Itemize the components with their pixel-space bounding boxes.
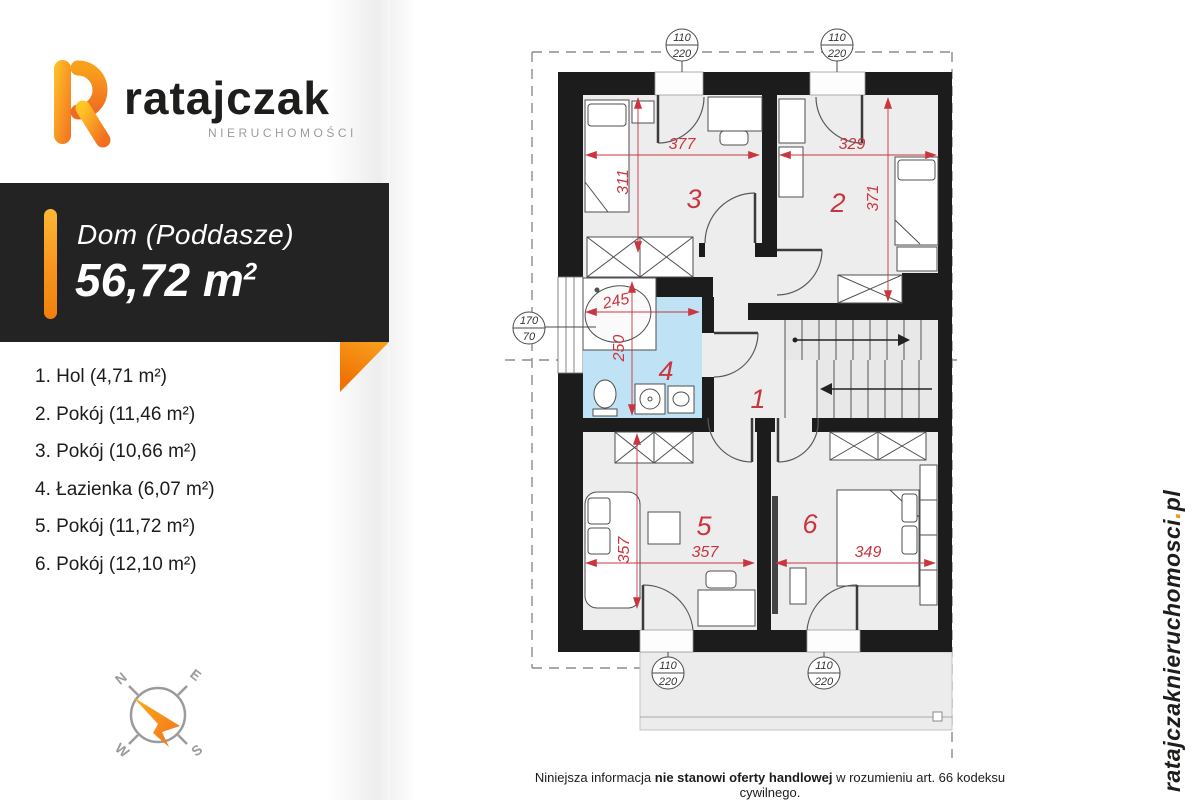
dim-room6-width: 349 <box>855 544 882 561</box>
area-card: Dom (Poddasze) 56,72 m2 <box>0 183 389 342</box>
dim-room2-depth: 371 <box>865 185 882 212</box>
brand-wordmark: ratajczak <box>124 72 330 124</box>
room-list-item-5: 5. Pokój (11,72 m²) <box>35 508 215 546</box>
terrace <box>640 652 952 730</box>
room-list-item-2: 2. Pokój (11,46 m²) <box>35 396 215 434</box>
window-label-height: 220 <box>658 676 678 688</box>
window-label-height: 220 <box>814 676 834 688</box>
dim-room5-depth: 357 <box>616 536 633 564</box>
compass-s: S <box>188 741 205 759</box>
floor-area: 56,72 m2 <box>75 253 257 307</box>
room-list-item-3: 3. Pokój (10,66 m²) <box>35 433 215 471</box>
website-name: ratajczaknieruchomosci <box>1159 519 1185 792</box>
room-list-item-6: 6. Pokój (12,10 m²) <box>35 546 215 584</box>
room-number-1: 1 <box>750 384 765 414</box>
side-window <box>558 277 583 373</box>
side-window-label-height: 70 <box>523 331 536 343</box>
disclaimer-start: Niniejsza informacja <box>535 770 655 785</box>
window-label-height: 220 <box>827 48 847 60</box>
window-label-height: 220 <box>672 48 692 60</box>
dim-room3-width: 377 <box>669 136 697 153</box>
floor-area-value: 56,72 m <box>75 254 244 306</box>
room-list-item-4: 4. Łazienka (6,07 m²) <box>35 471 215 509</box>
accent-bar <box>44 209 57 319</box>
room-list-item-1: 1. Hol (4,71 m²) <box>35 358 215 396</box>
room-number-4: 4 <box>658 356 673 386</box>
window-label-width: 110 <box>815 660 833 672</box>
room-number-6: 6 <box>802 509 818 539</box>
room-list: 1. Hol (4,71 m²) 2. Pokój (11,46 m²) 3. … <box>35 358 215 583</box>
dim-room2-width: 329 <box>839 136 866 153</box>
dim-room3-depth: 311 <box>615 169 632 195</box>
website-tld: pl <box>1159 490 1185 511</box>
room-number-2: 2 <box>829 188 845 218</box>
compass-n: N <box>112 669 130 688</box>
compass-arrow <box>133 697 180 747</box>
window-label-width: 110 <box>659 660 677 672</box>
brand-logo: ratajczak NIERUCHOMOŚCI <box>52 52 372 152</box>
compass-e: E <box>187 666 204 684</box>
logo-r-icon <box>54 60 103 144</box>
floor-area-exponent: 2 <box>244 259 257 286</box>
website-url[interactable]: ratajczaknieruchomosci.pl <box>1156 402 1187 792</box>
disclaimer-bold: nie stanowi oferty handlowej <box>655 770 833 785</box>
website-dot: . <box>1156 511 1186 519</box>
dim-bath-depth: 250 <box>611 335 628 363</box>
window-label-width: 110 <box>673 32 691 44</box>
room-number-3: 3 <box>686 184 701 214</box>
side-window-label-width: 170 <box>520 315 539 327</box>
floor-plan: 377 311 329 371 245 250 357 357 349 1 2 … <box>500 20 970 765</box>
legal-disclaimer: Niniejsza informacja nie stanowi oferty … <box>520 770 1020 800</box>
floor-title: Dom (Poddasze) <box>77 219 294 251</box>
panel-fold-shadow <box>390 0 416 800</box>
window-label-width: 110 <box>828 32 846 44</box>
compass-rose-icon: N E W S <box>108 658 218 773</box>
dim-room5-width: 357 <box>692 544 720 561</box>
brand-subtitle: NIERUCHOMOŚCI <box>208 125 357 140</box>
room-number-5: 5 <box>696 511 712 541</box>
